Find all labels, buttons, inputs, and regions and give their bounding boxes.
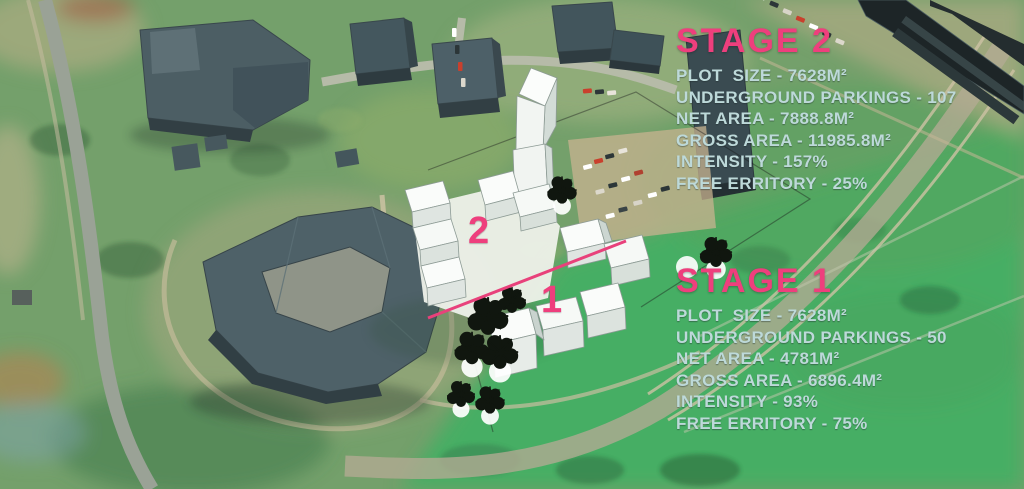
stage2-net-area: NET AREA - 7888.8M² bbox=[676, 108, 956, 130]
masterplan-aerial-view: STAGE 2 PLOT SIZE - 7628M² UNDERGROUND P… bbox=[0, 0, 1024, 489]
stage2-intensity: INTENSITY - 157% bbox=[676, 151, 956, 173]
stage1-free-territory: FREE ERRITORY - 75% bbox=[676, 413, 947, 435]
stage2-info-panel: STAGE 2 PLOT SIZE - 7628M² UNDERGROUND P… bbox=[676, 24, 956, 195]
stage1-plot-size: PLOT SIZE - 7628M² bbox=[676, 305, 947, 327]
stage2-free-territory: FREE ERRITORY - 25% bbox=[676, 173, 956, 195]
stage1-net-area: NET AREA - 4781M² bbox=[676, 348, 947, 370]
stage2-gross-area: GROSS AREA - 11985.8M² bbox=[676, 130, 956, 152]
annotations-overlay: STAGE 2 PLOT SIZE - 7628M² UNDERGROUND P… bbox=[0, 0, 1024, 489]
stage1-area-marker: 1 bbox=[541, 281, 562, 319]
stage1-stats: PLOT SIZE - 7628M² UNDERGROUND PARKINGS … bbox=[676, 305, 947, 435]
stage1-info-panel: STAGE 1 PLOT SIZE - 7628M² UNDERGROUND P… bbox=[676, 264, 947, 435]
stage1-title: STAGE 1 bbox=[676, 264, 947, 298]
stage1-intensity: INTENSITY - 93% bbox=[676, 391, 947, 413]
stage1-gross-area: GROSS AREA - 6896.4M² bbox=[676, 370, 947, 392]
stage2-title: STAGE 2 bbox=[676, 24, 956, 58]
stage2-area-marker: 2 bbox=[468, 212, 489, 250]
stage2-stats: PLOT SIZE - 7628M² UNDERGROUND PARKINGS … bbox=[676, 65, 956, 195]
stage2-underground-parkings: UNDERGROUND PARKINGS - 107 bbox=[676, 87, 956, 109]
stage1-underground-parkings: UNDERGROUND PARKINGS - 50 bbox=[676, 327, 947, 349]
stage2-plot-size: PLOT SIZE - 7628M² bbox=[676, 65, 956, 87]
